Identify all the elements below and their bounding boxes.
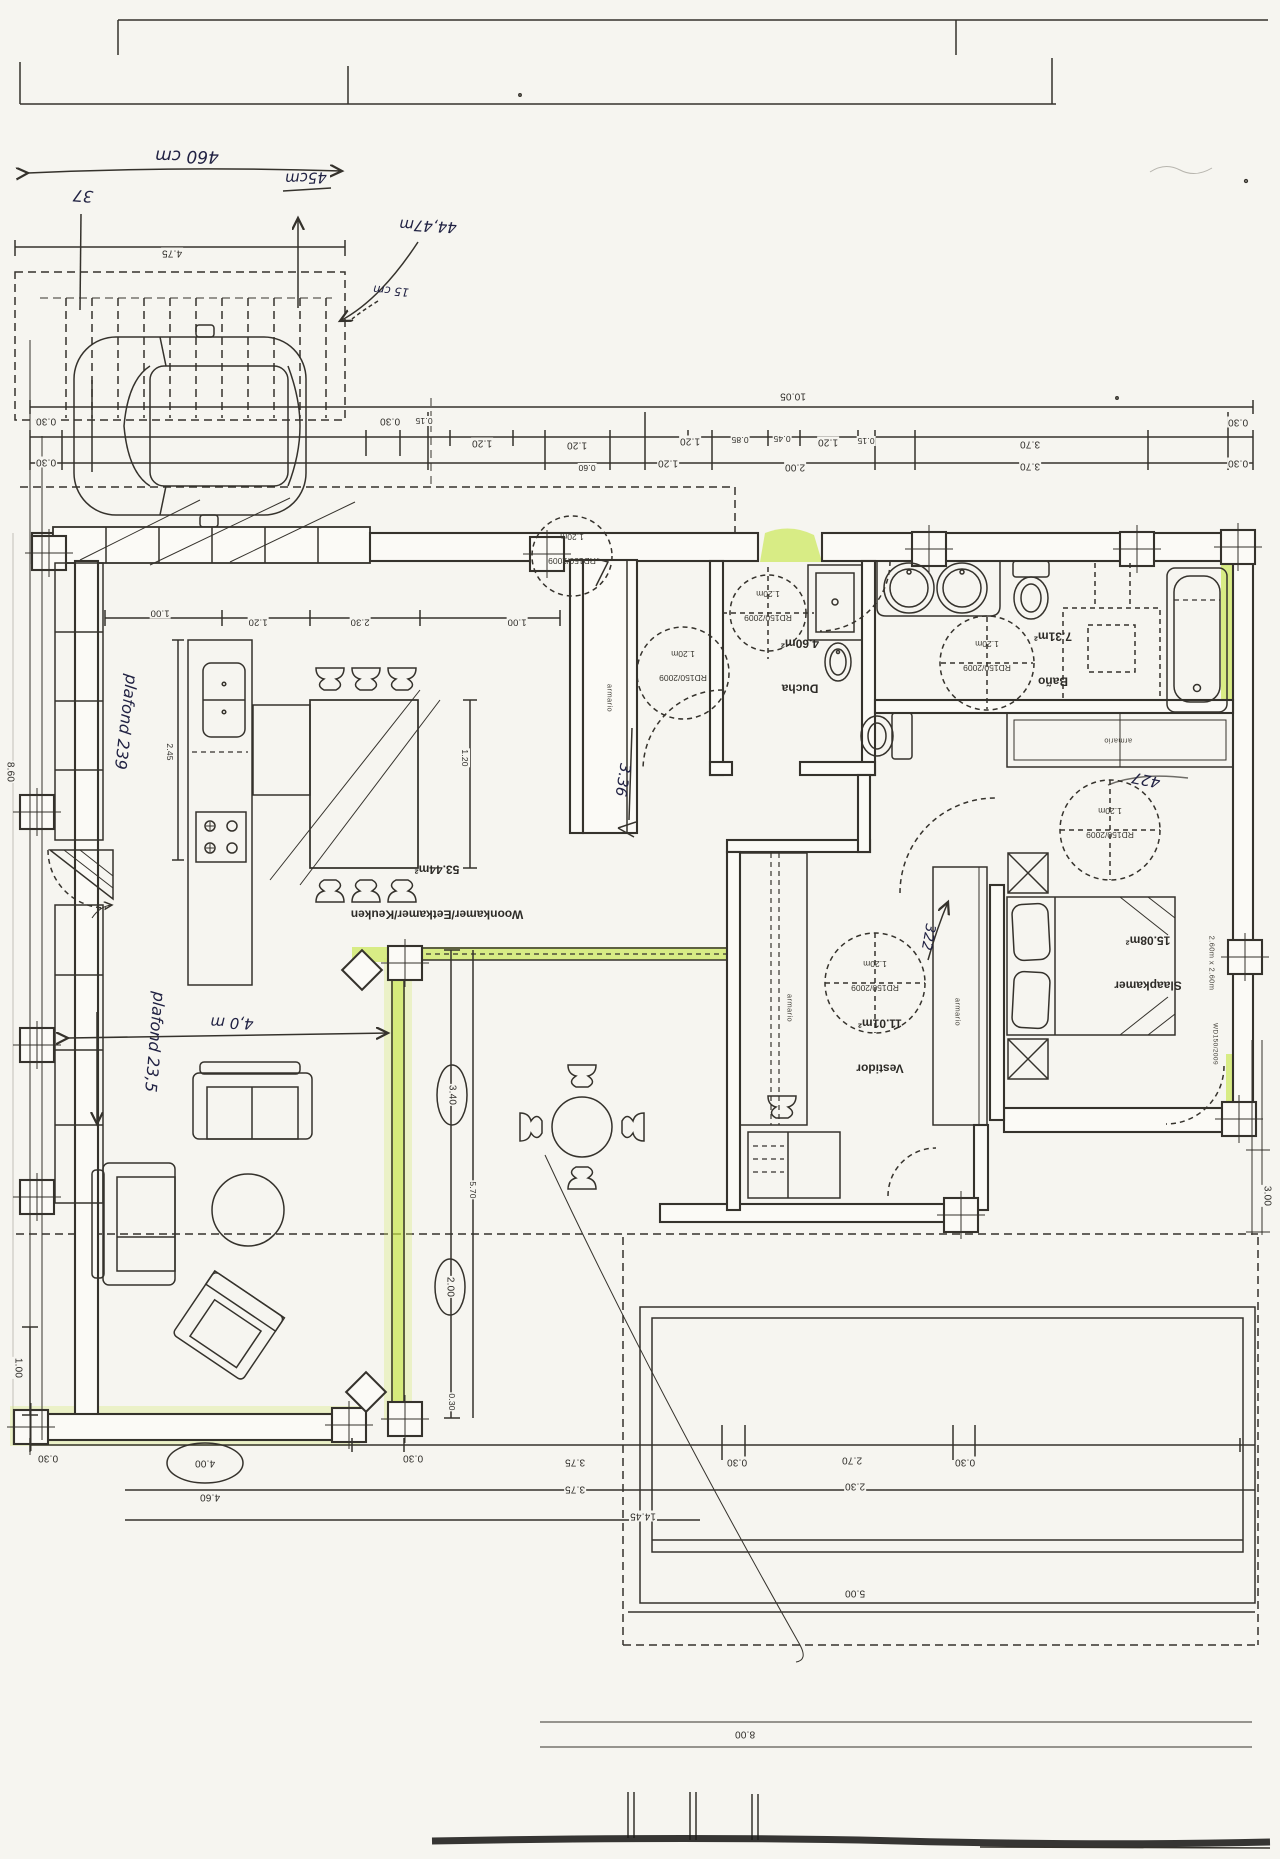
dim-terrace-len: 5.70	[468, 1180, 478, 1199]
pool	[540, 1040, 1270, 1840]
closet-label-bath-bench: armario	[1104, 737, 1132, 746]
room-label-living: Woonkamer/Eetkamer/Keuken 53.44m²	[351, 847, 524, 952]
wardrobe-left-icon	[740, 853, 807, 1125]
dim-t1-9: 0.15	[856, 436, 875, 446]
dim-pool-width: 5.00	[844, 1588, 866, 1599]
dim-t1-3: 1.20	[471, 438, 493, 449]
dim-t1-11: 0.30	[1227, 417, 1249, 428]
dim-b-9: 0.30	[954, 1457, 976, 1468]
note-living-width: 4,0 m	[210, 1013, 254, 1032]
dim-b-3: 4.60	[199, 1492, 221, 1503]
circle-dressing-diameter: 1.20m	[863, 959, 887, 969]
room-bedroom-name: Slaapkamer	[1114, 978, 1181, 993]
note-carport-37: 37	[72, 186, 94, 206]
dim-kitchen-1: 1.20	[247, 617, 268, 628]
dim-t1-8: 1.20	[817, 437, 839, 448]
dim-b-0: 0.30	[37, 1453, 59, 1464]
dim-b-5: 3.75	[564, 1484, 586, 1495]
circle-shower-diameter: 1.20m	[756, 589, 780, 599]
dim-t2-1: 0.60	[577, 463, 596, 473]
dim-pool-bottom: 8.00	[734, 1729, 756, 1740]
desk-icon	[748, 1096, 840, 1198]
dim-t1-1: 0.30	[379, 416, 401, 427]
dim-pool-side: 14.45	[629, 1511, 657, 1522]
dim-t1-6: 0.85	[730, 435, 749, 445]
walkin-shower-dashes	[1063, 563, 1160, 700]
dim-t2-5: 0.30	[1227, 458, 1249, 469]
stove-icon	[196, 812, 246, 862]
closet-label-dressing-right: armario	[954, 998, 963, 1026]
dim-b-2: 0.30	[402, 1453, 424, 1464]
dim-t2-3: 2.00	[784, 462, 806, 473]
room-shower-area: 4.60m²	[781, 636, 819, 651]
fridge-icon	[203, 663, 245, 737]
dim-terrace-w2: 2.00	[445, 1276, 456, 1298]
circle-entrance-diameter: 1.20m	[560, 532, 584, 542]
dim-t1-10: 3.70	[1019, 439, 1041, 450]
closet-label-corridor: armario	[606, 684, 615, 712]
dim-t2-2: 1.20	[657, 458, 679, 469]
room-label-shower: Ducha 4.60m²	[781, 621, 819, 726]
room-dressing-area: 11.01m²	[856, 1016, 903, 1031]
room-bathroom-area: 7.31m²	[1034, 629, 1072, 644]
room-bedroom-area: 15.08m²	[1114, 933, 1181, 948]
note-carport-15: 15 cm	[373, 282, 410, 299]
sheet-frame	[13, 20, 1268, 1445]
dim-t1-7: 0.45	[772, 434, 791, 444]
room-living-name: Woonkamer/Eetkamer/Keuken	[351, 907, 524, 922]
dim-t1-0: 0.30	[35, 416, 57, 427]
sofa-large-icon	[193, 1062, 312, 1139]
circle-bedroom-code: RD150/2009	[1086, 830, 1134, 840]
dim-right-height: 3.00	[1262, 1185, 1273, 1207]
dim-kitchen-2: 2.30	[349, 617, 370, 628]
circle-bathroom-code: RD150/2009	[963, 663, 1011, 673]
dim-t2-0: 0.30	[35, 457, 57, 468]
dim-kitchen-3: 1.00	[506, 617, 527, 628]
dim-b-6: 0.30	[726, 1457, 748, 1468]
dim-terrace-w: 3.40	[447, 1084, 458, 1106]
dim-total-top: 10.05	[779, 391, 807, 402]
dim-b-1: 4.00	[194, 1458, 216, 1469]
double-sink-icon	[877, 561, 1000, 616]
circle-bedroom-diameter: 1.20m	[1098, 806, 1122, 816]
pouf-icon	[212, 1174, 284, 1246]
dim-b-4: 3.75	[564, 1457, 586, 1468]
dim-b-7: 2.70	[841, 1455, 863, 1466]
dim-t1-2: 0.15	[414, 416, 433, 426]
note-carport-offset: 45cm	[285, 168, 328, 187]
circle-shower-code: RD150/2009	[744, 613, 792, 623]
dim-t1-5: 1.20	[679, 436, 701, 447]
dim-b-8: 2.30	[844, 1481, 866, 1492]
wardrobe-right-icon	[933, 867, 987, 1125]
closet-label-dressing-left: armario	[786, 994, 795, 1022]
bathtub-icon	[1167, 568, 1227, 712]
dim-terrace-edge: 0.30	[447, 1392, 457, 1411]
shower-room	[808, 565, 912, 759]
room-label-bedroom: Slaapkamer 15.08m²	[1114, 918, 1181, 1023]
dim-left-height: 8.60	[5, 761, 16, 783]
note-carport-width: 460 cm	[155, 145, 219, 166]
left-fence	[30, 340, 42, 1455]
dim-carport-width: 4.75	[161, 248, 183, 259]
circle-hall-code: RD150/2009	[659, 673, 707, 683]
room-bathroom-name: Baño	[1034, 674, 1072, 689]
scanned-floor-plan-sheet: 10.05 4.75 0.30 0.30 0.15 1.20 1.20 1.20…	[0, 0, 1280, 1859]
terrace-table-icon	[520, 1065, 644, 1189]
note-carport-height: 44,47m	[399, 216, 457, 237]
room-label-bathroom: Baño 7.31m²	[1034, 614, 1072, 719]
living-furniture	[92, 1062, 312, 1381]
dim-kitchen-0: 1.00	[149, 608, 170, 619]
terrace	[435, 950, 644, 1418]
dim-t1-4: 1.20	[566, 440, 588, 451]
circle-bathroom-diameter: 1.20m	[975, 639, 999, 649]
dimension-chain-top	[30, 398, 1253, 487]
dim-kitchen-depth: 2.45	[165, 742, 175, 761]
nightstand-icons	[1008, 853, 1048, 1079]
bed-code-label: WD150/2009	[1212, 1023, 1219, 1065]
floor-plan-drawing	[0, 0, 1280, 1859]
room-shower-name: Ducha	[781, 681, 819, 696]
shower-sink-icon	[825, 643, 851, 681]
bathroom-toilet-icon	[1013, 561, 1049, 619]
kitchen-dim-lines	[105, 610, 560, 868]
dim-island-width: 1.20	[460, 748, 470, 767]
circle-hall-diameter: 1.20m	[671, 649, 695, 659]
bed-size-label: 2.60m x 2.60m	[1208, 936, 1217, 991]
sofa-small-icon	[92, 1163, 175, 1285]
room-label-dressing: Vestidor 11.01m²	[856, 1001, 903, 1106]
room-living-area: 53.44m²	[351, 862, 524, 877]
room-dressing-name: Vestidor	[856, 1061, 903, 1076]
bottom-smudge	[432, 1839, 1270, 1849]
armchair-icon	[172, 1271, 284, 1381]
car-icon	[74, 325, 306, 527]
dim-left-bottom: 1.00	[13, 1357, 24, 1379]
dim-t2-4: 3.70	[1019, 461, 1041, 472]
circle-entrance-code: RD150/2009	[548, 556, 596, 566]
circle-dressing-code: RD150/2009	[851, 983, 899, 993]
